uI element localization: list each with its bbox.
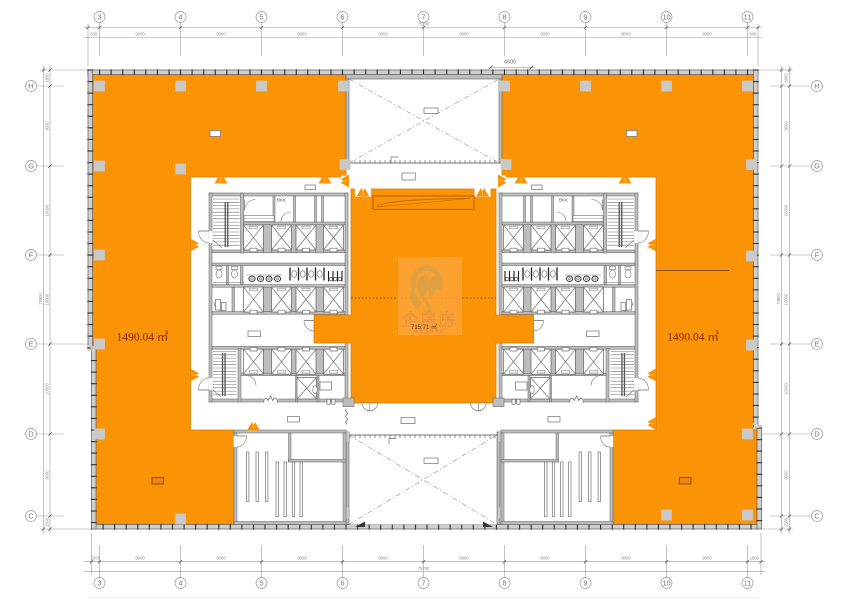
svg-text:H: H (28, 82, 33, 91)
svg-text:9000: 9000 (784, 121, 789, 131)
svg-text:BKK: BKK (559, 198, 568, 203)
svg-text:9000: 9000 (45, 470, 50, 480)
svg-text:5: 5 (259, 579, 263, 588)
svg-text:1500: 1500 (91, 555, 101, 560)
svg-text:1500: 1500 (750, 555, 760, 560)
svg-text:9000: 9000 (378, 31, 388, 36)
svg-text:10000: 10000 (45, 383, 50, 395)
svg-text:9: 9 (583, 579, 587, 588)
svg-text:E: E (814, 340, 819, 349)
svg-text:8: 8 (502, 13, 506, 22)
svg-text:G: G (28, 162, 34, 171)
svg-text:E: E (28, 340, 33, 349)
svg-text:9000: 9000 (459, 31, 469, 36)
svg-text:6: 6 (340, 579, 344, 588)
svg-text:1500: 1500 (784, 517, 789, 527)
svg-text:3: 3 (97, 13, 101, 22)
svg-text:BKK: BKK (277, 198, 286, 203)
svg-text:9000: 9000 (702, 555, 712, 560)
svg-text:9000: 9000 (297, 555, 307, 560)
svg-text:F: F (815, 251, 820, 260)
svg-text:500: 500 (749, 31, 757, 36)
svg-text:73800: 73800 (38, 293, 43, 305)
svg-text:10000: 10000 (784, 383, 789, 395)
svg-text:9000: 9000 (216, 31, 226, 36)
svg-text:9000: 9000 (216, 555, 226, 560)
svg-text:715.71 ㎡: 715.71 ㎡ (411, 323, 437, 331)
svg-text:10000: 10000 (45, 204, 50, 216)
svg-text:9000: 9000 (702, 31, 712, 36)
svg-text:5: 5 (259, 13, 263, 22)
svg-text:10000: 10000 (784, 204, 789, 216)
svg-text:9000: 9000 (378, 555, 388, 560)
svg-text:7: 7 (421, 579, 425, 588)
svg-text:9000: 9000 (621, 555, 631, 560)
svg-text:8: 8 (502, 579, 506, 588)
svg-text:9000: 9000 (135, 31, 145, 36)
svg-text:9000: 9000 (459, 555, 469, 560)
svg-text:75700: 75700 (418, 566, 430, 571)
svg-text:7: 7 (421, 13, 425, 22)
svg-text:4: 4 (178, 13, 182, 22)
svg-text:6: 6 (340, 13, 344, 22)
svg-text:9000: 9000 (540, 31, 550, 36)
svg-text:9000: 9000 (135, 555, 145, 560)
svg-text:9000: 9000 (45, 121, 50, 131)
svg-text:4: 4 (178, 579, 182, 588)
svg-text:500: 500 (90, 31, 98, 36)
svg-text:4500: 4500 (504, 59, 516, 65)
svg-text:11: 11 (744, 579, 752, 588)
svg-text:D: D (28, 430, 34, 439)
svg-text:1490.04 ㎡: 1490.04 ㎡ (117, 331, 169, 344)
svg-text:75700: 75700 (418, 22, 430, 27)
svg-text:1800: 1800 (45, 73, 50, 83)
svg-text:1800: 1800 (784, 73, 789, 83)
svg-text:1500: 1500 (45, 517, 50, 527)
svg-text:9: 9 (583, 13, 587, 22)
svg-text:1490.04 ㎡: 1490.04 ㎡ (667, 331, 719, 344)
svg-text:D: D (814, 430, 820, 439)
svg-text:3: 3 (97, 579, 101, 588)
svg-text:H: H (814, 82, 819, 91)
svg-text:9000: 9000 (540, 555, 550, 560)
svg-text:10000: 10000 (784, 293, 789, 305)
svg-text:10: 10 (662, 579, 670, 588)
svg-text:9000: 9000 (621, 31, 631, 36)
svg-text:C: C (28, 512, 34, 521)
svg-text:73800: 73800 (776, 293, 781, 305)
svg-text:10000: 10000 (45, 293, 50, 305)
svg-text:9000: 9000 (784, 470, 789, 480)
svg-text:9000: 9000 (297, 31, 307, 36)
svg-text:G: G (814, 162, 820, 171)
svg-text:C: C (814, 512, 820, 521)
svg-text:11: 11 (744, 13, 752, 22)
svg-text:10: 10 (662, 13, 670, 22)
svg-text:F: F (29, 251, 34, 260)
